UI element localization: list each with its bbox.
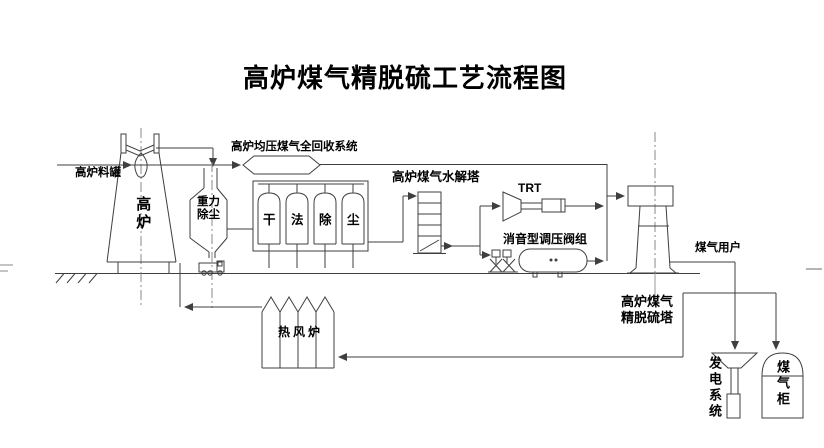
label-gas-holder: 煤气柜 (774, 360, 789, 408)
label-dry-dedusting-char-4: 尘 (347, 213, 360, 227)
tower-feed-manifold (607, 164, 624, 261)
label-blast-furnace: 高炉 (134, 196, 151, 232)
diagram-title: 高炉煤气精脱硫工艺流程图 (240, 58, 570, 95)
process-flow-diagram: 高炉煤气精脱硫工艺流程图 高炉料罐 高炉 重力 除尘 高炉均压煤气全回收系统 干… (0, 0, 824, 448)
label-desulfurization-tower-line2: 精脱硫塔 (621, 311, 673, 326)
label-gravity-dedusting-line1: 重力 (197, 196, 220, 209)
label-trt: TRT (518, 182, 541, 196)
label-gas-users: 煤气用户 (695, 242, 741, 255)
label-dry-dedusting-char-1: 干 (263, 213, 276, 227)
furnace-top-gas-line (156, 148, 213, 166)
label-power-generation: 发电系统 (706, 356, 721, 420)
label-desulfurization-tower-line1: 高炉煤气 (621, 295, 673, 310)
fine-desulfurization-tower (627, 132, 679, 303)
label-dry-dedusting-char-2: 法 (291, 213, 304, 227)
trt-turbine (503, 192, 603, 221)
label-dry-dedusting-char-3: 除 (319, 213, 332, 227)
hot-blast-line (180, 263, 262, 307)
label-charging-tank: 高炉料罐 (75, 167, 121, 180)
label-hot-blast-stove: 热风炉 (278, 326, 323, 340)
pressure-regulating-valve-group (488, 249, 603, 277)
label-hydrolysis-tower: 高炉煤气水解塔 (392, 170, 480, 184)
hydrolysis-tower (403, 192, 480, 254)
label-recovery-system: 高炉均压煤气全回收系统 (231, 141, 358, 154)
gravity-dust-collector (190, 162, 253, 308)
label-gravity-dedusting-line2: 除尘 (197, 209, 220, 222)
ground-line (0, 265, 822, 283)
label-valve-group: 消音型调压阀组 (503, 233, 587, 247)
trt-bypass-junction (480, 206, 500, 255)
